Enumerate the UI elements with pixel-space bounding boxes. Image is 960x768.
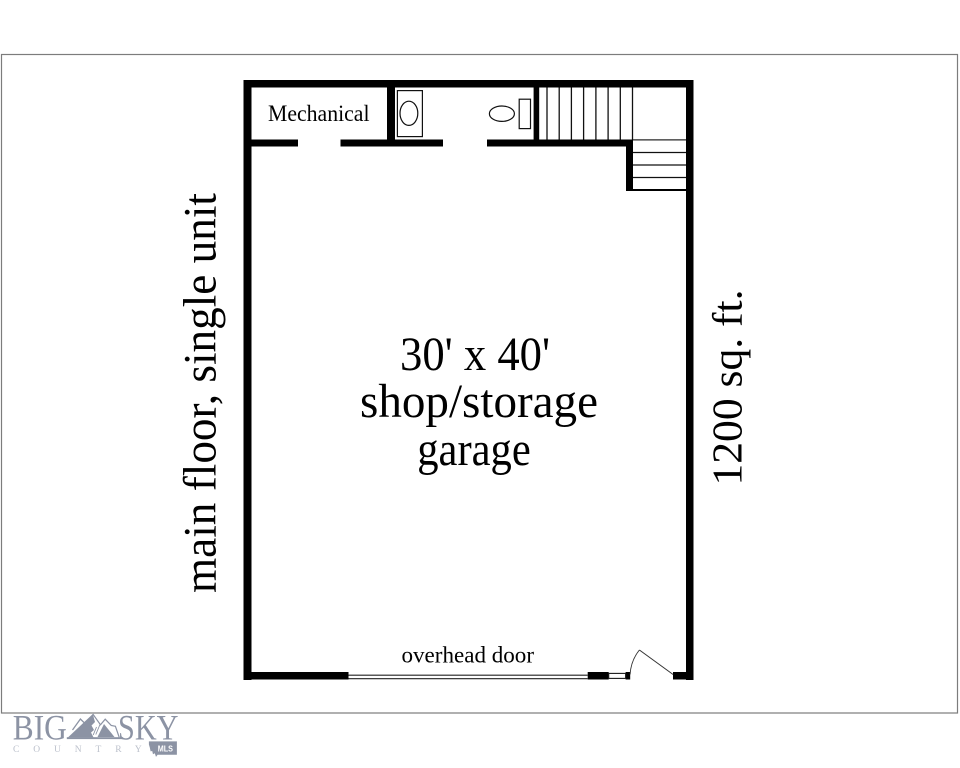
svg-text:BIG: BIG bbox=[13, 708, 67, 748]
svg-text:main floor, single unit: main floor, single unit bbox=[175, 193, 227, 593]
svg-text:garage: garage bbox=[417, 423, 531, 476]
svg-text:overhead door: overhead door bbox=[402, 643, 535, 668]
svg-text:MLS: MLS bbox=[158, 743, 173, 753]
svg-text:30' x 40': 30' x 40' bbox=[400, 328, 550, 381]
svg-text:shop/storage: shop/storage bbox=[360, 375, 598, 428]
svg-text:Mechanical: Mechanical bbox=[268, 101, 370, 127]
svg-text:1200 sq. ft.: 1200 sq. ft. bbox=[706, 290, 752, 486]
svg-text:COUNTRY: COUNTRY bbox=[13, 745, 156, 755]
